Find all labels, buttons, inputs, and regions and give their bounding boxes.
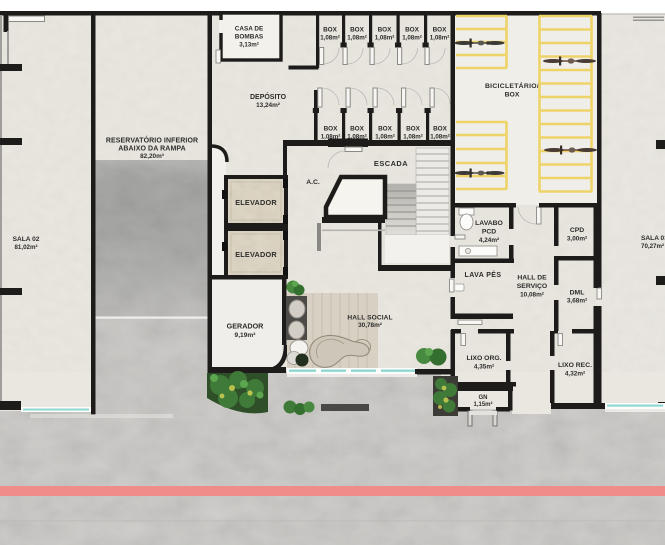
svg-text:BOX: BOX	[323, 26, 338, 33]
svg-text:BOX: BOX	[505, 92, 520, 99]
svg-text:BOX: BOX	[350, 26, 365, 33]
svg-text:3,68m²: 3,68m²	[567, 298, 587, 305]
svg-text:PCD: PCD	[482, 229, 496, 236]
svg-text:30,78m²: 30,78m²	[358, 322, 382, 329]
svg-text:4,24m²: 4,24m²	[479, 237, 499, 244]
svg-text:BICICLETÁRIO/: BICICLETÁRIO/	[485, 81, 539, 90]
svg-text:DEPÓSITO: DEPÓSITO	[250, 92, 287, 101]
svg-text:GERADOR: GERADOR	[227, 322, 265, 331]
svg-text:HALL SOCIAL: HALL SOCIAL	[347, 315, 392, 322]
svg-text:1,08m²: 1,08m²	[347, 35, 367, 42]
svg-text:4,32m²: 4,32m²	[565, 371, 585, 378]
svg-text:SALA 02: SALA 02	[13, 236, 40, 243]
svg-text:HALL DE: HALL DE	[517, 275, 547, 282]
svg-text:3,00m²: 3,00m²	[567, 236, 587, 243]
svg-text:GN: GN	[479, 395, 488, 401]
svg-text:ELEVADOR: ELEVADOR	[235, 198, 277, 207]
svg-text:1,08m²: 1,08m²	[320, 35, 340, 42]
svg-text:13,24m²: 13,24m²	[256, 102, 280, 109]
svg-text:BOMBAS: BOMBAS	[235, 34, 264, 41]
svg-text:LIXO ORG.: LIXO ORG.	[466, 355, 501, 362]
svg-text:BOX: BOX	[433, 125, 448, 132]
svg-text:1,08m²: 1,08m²	[430, 133, 450, 140]
svg-text:BOX: BOX	[350, 125, 365, 132]
svg-text:9,19m²: 9,19m²	[235, 332, 257, 339]
svg-text:1,08m²: 1,08m²	[321, 133, 341, 140]
svg-text:10,08m²: 10,08m²	[520, 292, 544, 299]
svg-text:4,35m²: 4,35m²	[474, 364, 494, 371]
svg-text:1,08m²: 1,08m²	[430, 35, 450, 42]
svg-text:RESERVATÓRIO INFERIOR: RESERVATÓRIO INFERIOR	[106, 136, 198, 145]
svg-text:ELEVADOR: ELEVADOR	[235, 250, 277, 259]
svg-text:81,02m²: 81,02m²	[14, 244, 37, 251]
svg-text:CPD: CPD	[570, 227, 584, 234]
svg-text:1,08m²: 1,08m²	[347, 133, 367, 140]
svg-text:70,27m²: 70,27m²	[641, 243, 664, 250]
svg-text:BOX: BOX	[406, 125, 421, 132]
svg-text:SERVIÇO: SERVIÇO	[517, 283, 547, 290]
svg-text:BOX: BOX	[433, 26, 448, 33]
svg-text:BOX: BOX	[378, 125, 393, 132]
svg-text:BOX: BOX	[405, 26, 420, 33]
svg-text:1,08m²: 1,08m²	[375, 35, 395, 42]
svg-text:LAVA PÉS: LAVA PÉS	[465, 270, 502, 279]
svg-text:SALA 03: SALA 03	[641, 235, 665, 242]
svg-text:82,20m³: 82,20m³	[140, 153, 164, 160]
svg-text:A.C.: A.C.	[306, 179, 320, 186]
svg-text:BOX: BOX	[378, 26, 393, 33]
svg-text:1,08m²: 1,08m²	[403, 133, 423, 140]
svg-text:1,15m²: 1,15m²	[473, 401, 492, 408]
svg-text:BOX: BOX	[324, 125, 339, 132]
svg-text:ABAIXO DA RAMPA: ABAIXO DA RAMPA	[118, 146, 186, 153]
svg-text:DML: DML	[570, 290, 585, 297]
svg-text:ESCADA: ESCADA	[374, 159, 408, 168]
svg-text:3,13m²: 3,13m²	[239, 42, 259, 49]
svg-text:CASA DE: CASA DE	[235, 26, 264, 33]
svg-text:1,08m²: 1,08m²	[402, 35, 422, 42]
svg-text:LAVABO: LAVABO	[475, 220, 503, 227]
svg-text:LIXO REC.: LIXO REC.	[558, 362, 592, 369]
svg-text:1,08m²: 1,08m²	[375, 133, 395, 140]
